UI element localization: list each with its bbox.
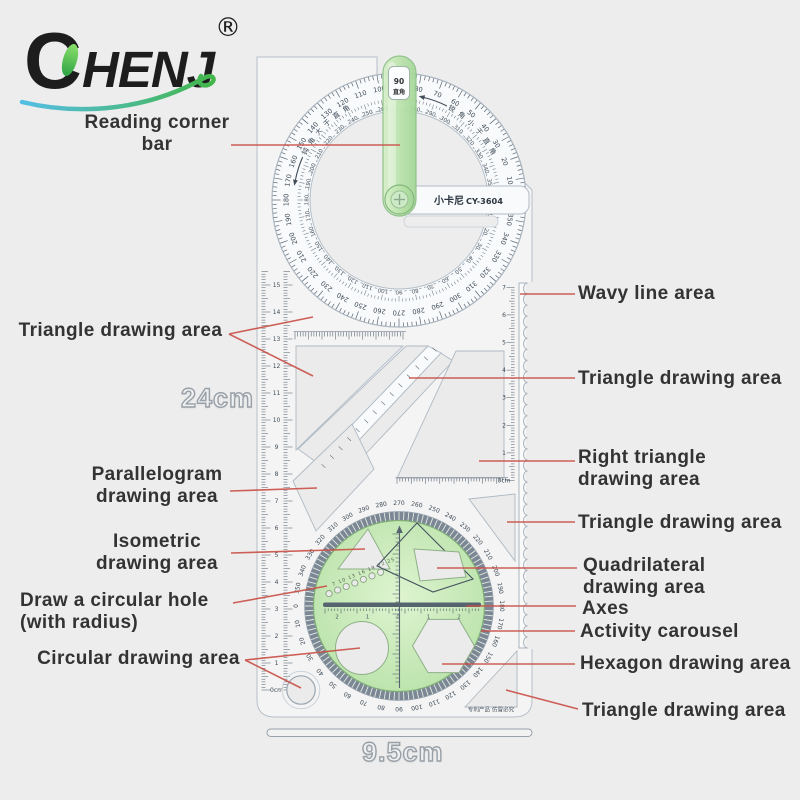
svg-text:10: 10 xyxy=(505,176,514,186)
svg-text:0: 0 xyxy=(293,604,300,608)
svg-text:4: 4 xyxy=(502,367,506,374)
width-dimension: 9.5cm xyxy=(362,737,444,768)
quadrilateral-cutout xyxy=(414,549,466,581)
model-text: CY-3604 xyxy=(466,196,503,206)
svg-text:90: 90 xyxy=(395,705,403,712)
label-wavy-line-area: Wavy line area xyxy=(578,283,715,305)
svg-text:15: 15 xyxy=(273,282,281,289)
registered-mark: ® xyxy=(215,13,241,43)
svg-text:80: 80 xyxy=(377,703,386,711)
label-triangle-area-left: Triangle drawing area xyxy=(8,320,233,342)
svg-text:12: 12 xyxy=(273,363,281,370)
pivot-bar xyxy=(399,186,529,214)
brand-cn-text: 小卡尼 xyxy=(433,194,464,207)
svg-text:10: 10 xyxy=(273,417,281,424)
svg-text:7: 7 xyxy=(502,284,506,291)
svg-text:180: 180 xyxy=(283,194,291,207)
svg-text:8: 8 xyxy=(275,471,279,478)
label-right-triangle-area: Right triangle drawing area xyxy=(578,447,733,492)
svg-text:180: 180 xyxy=(305,194,311,205)
label-circular-hole: Draw a circular hole (with radius) xyxy=(20,590,238,635)
svg-text:3: 3 xyxy=(502,395,506,402)
label-reading-corner-bar: Reading corner bar xyxy=(84,112,230,157)
reading-window-value: 90 xyxy=(394,77,404,86)
svg-text:14: 14 xyxy=(273,309,281,316)
label-activity-carousel: Activity carousel xyxy=(580,621,739,643)
svg-text:13: 13 xyxy=(273,336,281,343)
brand-logo: C HENJ ® xyxy=(10,4,250,119)
label-triangle-area-r3: Triangle drawing area xyxy=(582,700,786,722)
pivot-bar-slot xyxy=(404,216,498,227)
label-triangle-area-r1: Triangle drawing area xyxy=(578,368,782,390)
svg-text:270: 270 xyxy=(393,500,405,507)
svg-text:1: 1 xyxy=(502,450,506,457)
svg-text:2: 2 xyxy=(335,615,338,621)
svg-text:2: 2 xyxy=(275,633,279,640)
edge-mask xyxy=(526,282,535,649)
svg-text:6: 6 xyxy=(275,525,279,532)
patent-text: 专利产品 仿冒必究 xyxy=(468,706,515,714)
corner-circle-cutout xyxy=(287,676,315,704)
logo-rest: HENJ xyxy=(82,41,217,98)
svg-text:10: 10 xyxy=(294,619,302,628)
reading-window-label: 直角 xyxy=(393,88,405,96)
svg-text:1: 1 xyxy=(366,615,369,621)
svg-text:1: 1 xyxy=(275,660,279,667)
label-parallelogram-area: Parallelogram drawing area xyxy=(84,464,230,509)
svg-text:3: 3 xyxy=(275,606,279,613)
svg-text:90: 90 xyxy=(395,289,403,295)
label-circular-area: Circular drawing area xyxy=(36,648,241,670)
svg-text:5: 5 xyxy=(275,552,279,559)
svg-text:4: 4 xyxy=(275,579,279,586)
svg-text:0cm: 0cm xyxy=(498,478,511,485)
svg-text:270: 270 xyxy=(393,308,406,316)
svg-text:2: 2 xyxy=(502,422,506,429)
svg-text:6: 6 xyxy=(502,312,506,319)
width-dimension-bar xyxy=(267,729,532,737)
svg-text:0cm: 0cm xyxy=(270,687,283,694)
label-isometric-area: Isometric drawing area xyxy=(84,531,230,576)
label-hexagon-area: Hexagon drawing area xyxy=(580,653,791,675)
label-triangle-area-r2: Triangle drawing area xyxy=(578,512,782,534)
svg-text:7: 7 xyxy=(275,498,279,505)
label-quadrilateral-area: Quadrilateral drawing area xyxy=(583,555,728,600)
label-axes: Axes xyxy=(582,598,629,620)
x-axis-bar xyxy=(323,603,481,608)
circle-cutout xyxy=(336,622,389,675)
svg-text:9: 9 xyxy=(275,444,279,451)
svg-text:11: 11 xyxy=(273,390,281,397)
product-image: 0102030405060708010011012013014015016017… xyxy=(0,0,800,800)
height-dimension: 24cm xyxy=(181,383,254,414)
svg-text:5: 5 xyxy=(502,340,506,347)
